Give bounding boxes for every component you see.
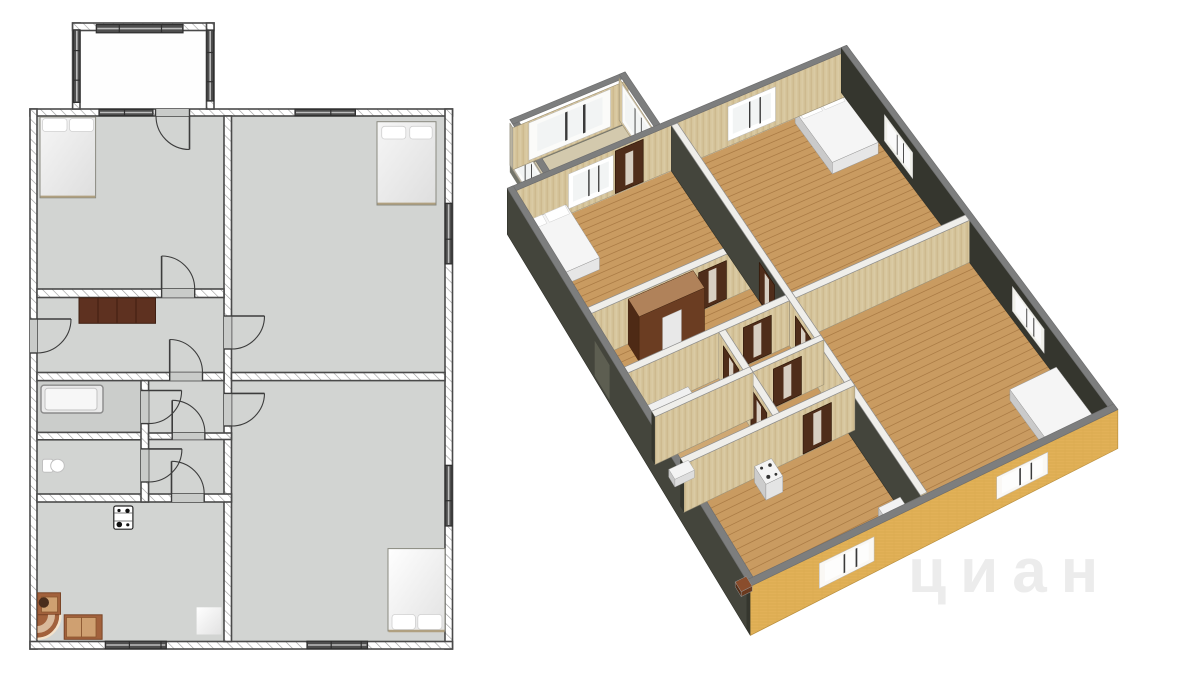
svg-text:циан: циан xyxy=(908,537,1112,606)
